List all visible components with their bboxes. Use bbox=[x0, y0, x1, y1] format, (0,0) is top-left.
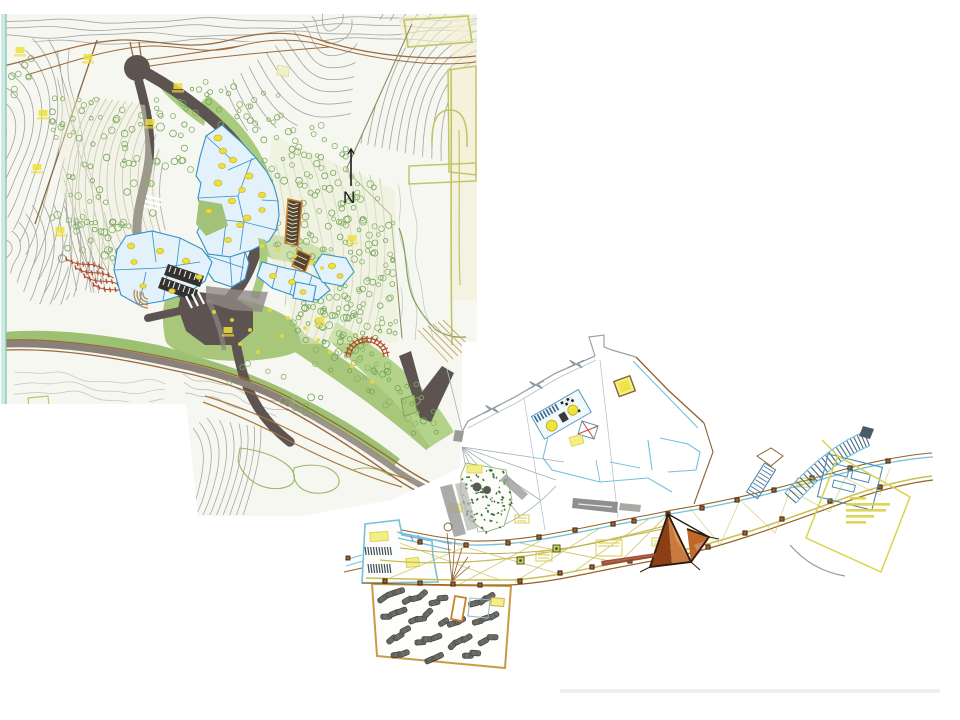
svg-text:N: N bbox=[343, 188, 355, 207]
